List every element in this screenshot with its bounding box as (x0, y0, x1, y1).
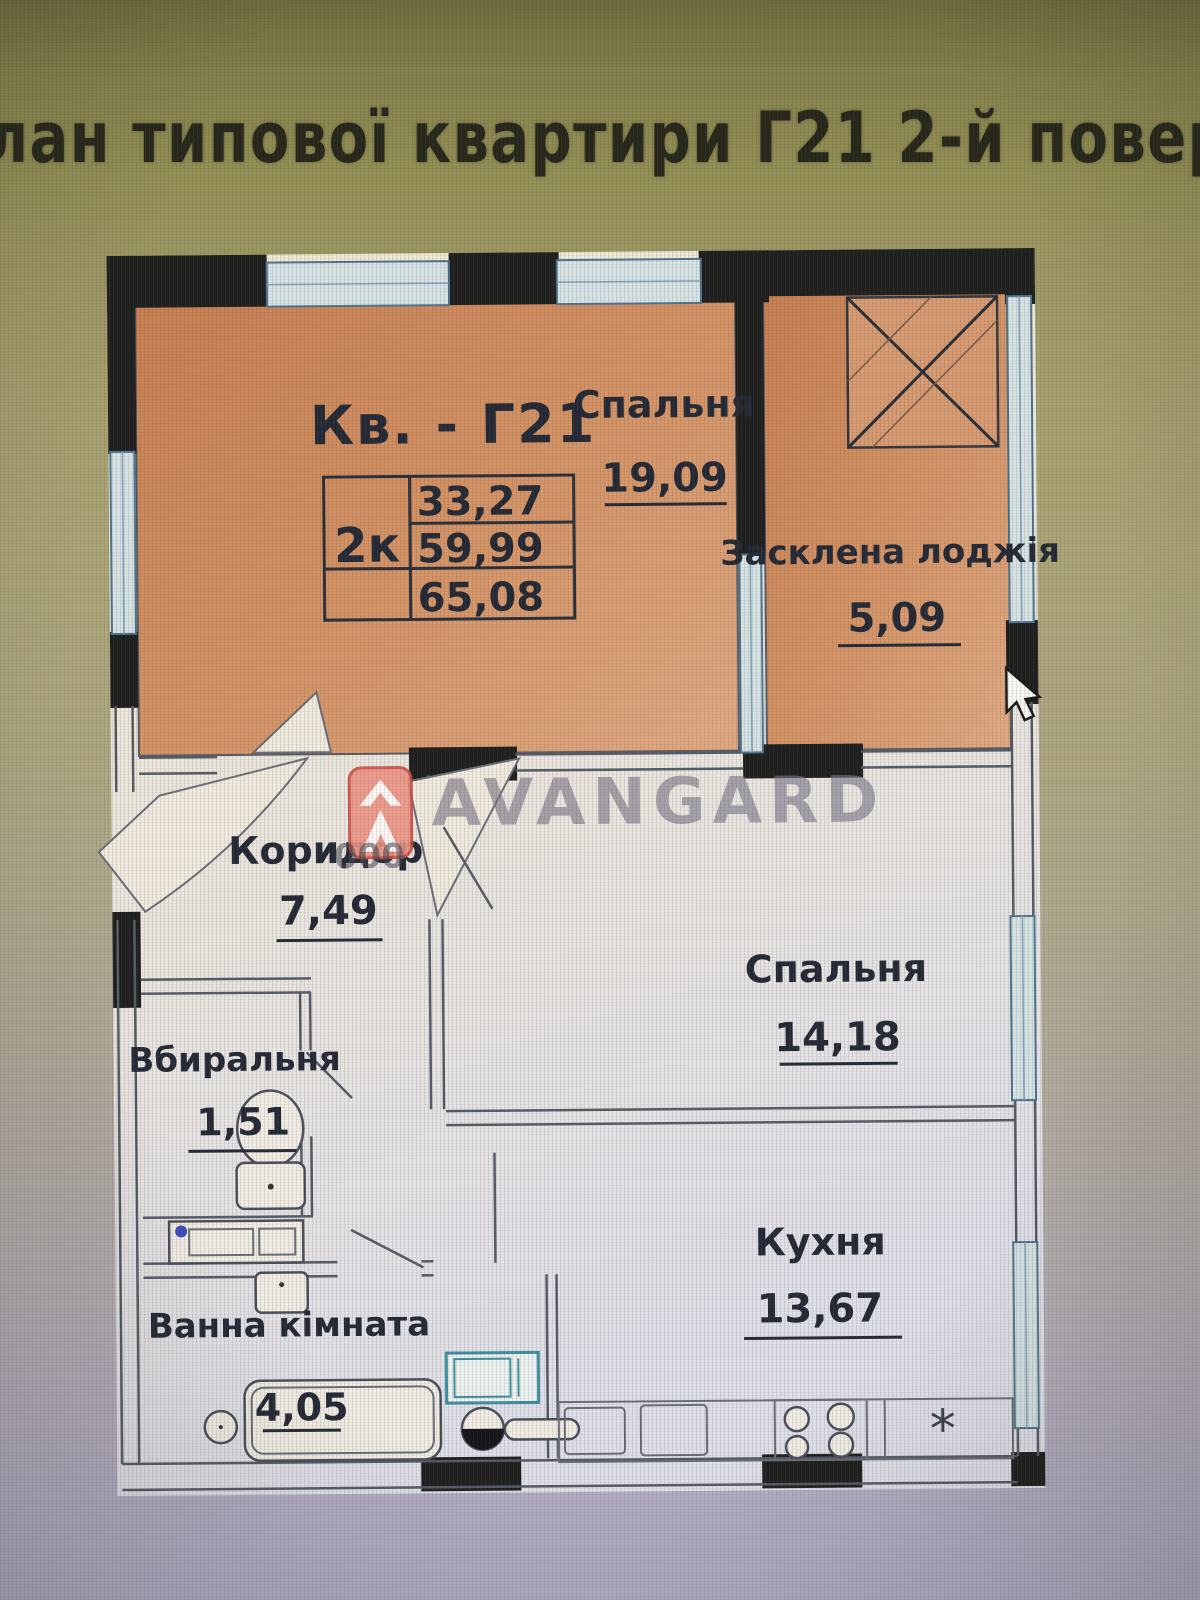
page-title-text: лан типової квартири Г21 2-й поверх (0, 98, 1200, 179)
loggia-name: Засклена лоджія (720, 531, 1060, 574)
bedroom2-area: 14,18 (774, 1014, 901, 1061)
window-kitchen (1013, 1242, 1039, 1428)
corridor-area: 7,49 (279, 888, 378, 935)
kitchen-name: Кухня (755, 1219, 886, 1264)
watermark-stray-text: 000 (334, 836, 405, 877)
washing-machine-icon (446, 1352, 538, 1403)
bathroom-area: 4,05 (255, 1385, 349, 1430)
svg-text:*: * (930, 1400, 957, 1460)
washbasin-counter-icon (169, 1220, 303, 1263)
window-bedroom-2 (1010, 916, 1036, 1100)
loggia-glazing-right (1007, 296, 1034, 622)
blue-dot (175, 1225, 187, 1237)
toilet-name: Вбиральня (128, 1039, 341, 1081)
bedroom1-area: 19,09 (601, 455, 728, 502)
apartment-type: 2к (334, 518, 400, 575)
loggia-area: 5,09 (847, 595, 946, 642)
area-row-2: 59,99 (417, 525, 544, 572)
kitchen-door-leaf (494, 1153, 495, 1263)
faucet-icon (505, 1419, 579, 1440)
window-top-2 (557, 259, 701, 304)
kitchen-area: 13,67 (756, 1285, 883, 1332)
floor-plan: * Кв. - Г21 2к 33,27 59,99 65,08 Спаль (0, 0, 1200, 1600)
screen-photo: лан типової квартири Г21 2-й поверх (0, 0, 1200, 1600)
bedroom2-name: Спальня (745, 946, 928, 992)
bathroom-name: Ванна кімната (148, 1304, 431, 1346)
window-top-1 (267, 261, 449, 307)
watermark-brand: AVANGARD (431, 763, 886, 841)
bedroom1-name: Спальня (573, 381, 756, 427)
room-loggia (763, 292, 1011, 750)
area-row-3: 65,08 (417, 574, 544, 621)
apartment-label: Кв. - Г21 (310, 392, 597, 457)
page-title: лан типової квартири Г21 2-й поверх (0, 98, 1200, 179)
toilet-area: 1,51 (196, 1100, 290, 1145)
vent-shaft-icon (847, 296, 998, 447)
balcony-door-glass (739, 554, 763, 752)
window-left (110, 452, 136, 634)
area-row-1: 33,27 (417, 478, 544, 525)
